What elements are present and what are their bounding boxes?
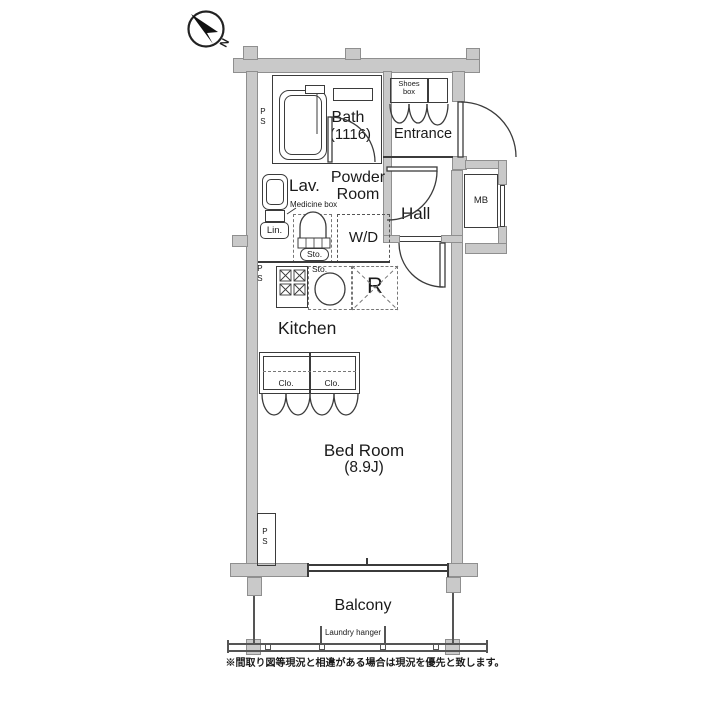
fridge-cross: [352, 266, 398, 310]
hall-door-arc: [387, 171, 437, 220]
shoes-box-arc-3: [427, 104, 448, 125]
compass: N: [189, 12, 231, 49]
stove-burners: [280, 270, 305, 295]
closet-arc-3: [310, 394, 334, 415]
entrance-door-leaf: [458, 102, 463, 157]
closet-arc-1: [262, 394, 286, 415]
bath-door-arc: [330, 117, 375, 162]
closet-arc-2: [286, 394, 310, 415]
shoes-box-arc-2: [409, 104, 427, 123]
floor-plan: Bath (1116) Shoes box Entrance MB Hall P…: [0, 0, 720, 720]
closet-arc-4: [334, 394, 358, 415]
entrance-door-arc: [461, 102, 516, 157]
hall-door-leaf: [387, 167, 437, 171]
kitchen-door-arc: [399, 243, 443, 287]
kitchen-sink: [315, 273, 345, 305]
plan-linework: N: [0, 0, 720, 720]
medicine-box-leader: [287, 208, 296, 214]
kitchen-door-leaf: [440, 243, 445, 287]
bath-door-leaf: [328, 117, 332, 162]
shoes-box-arc-1: [390, 104, 409, 123]
